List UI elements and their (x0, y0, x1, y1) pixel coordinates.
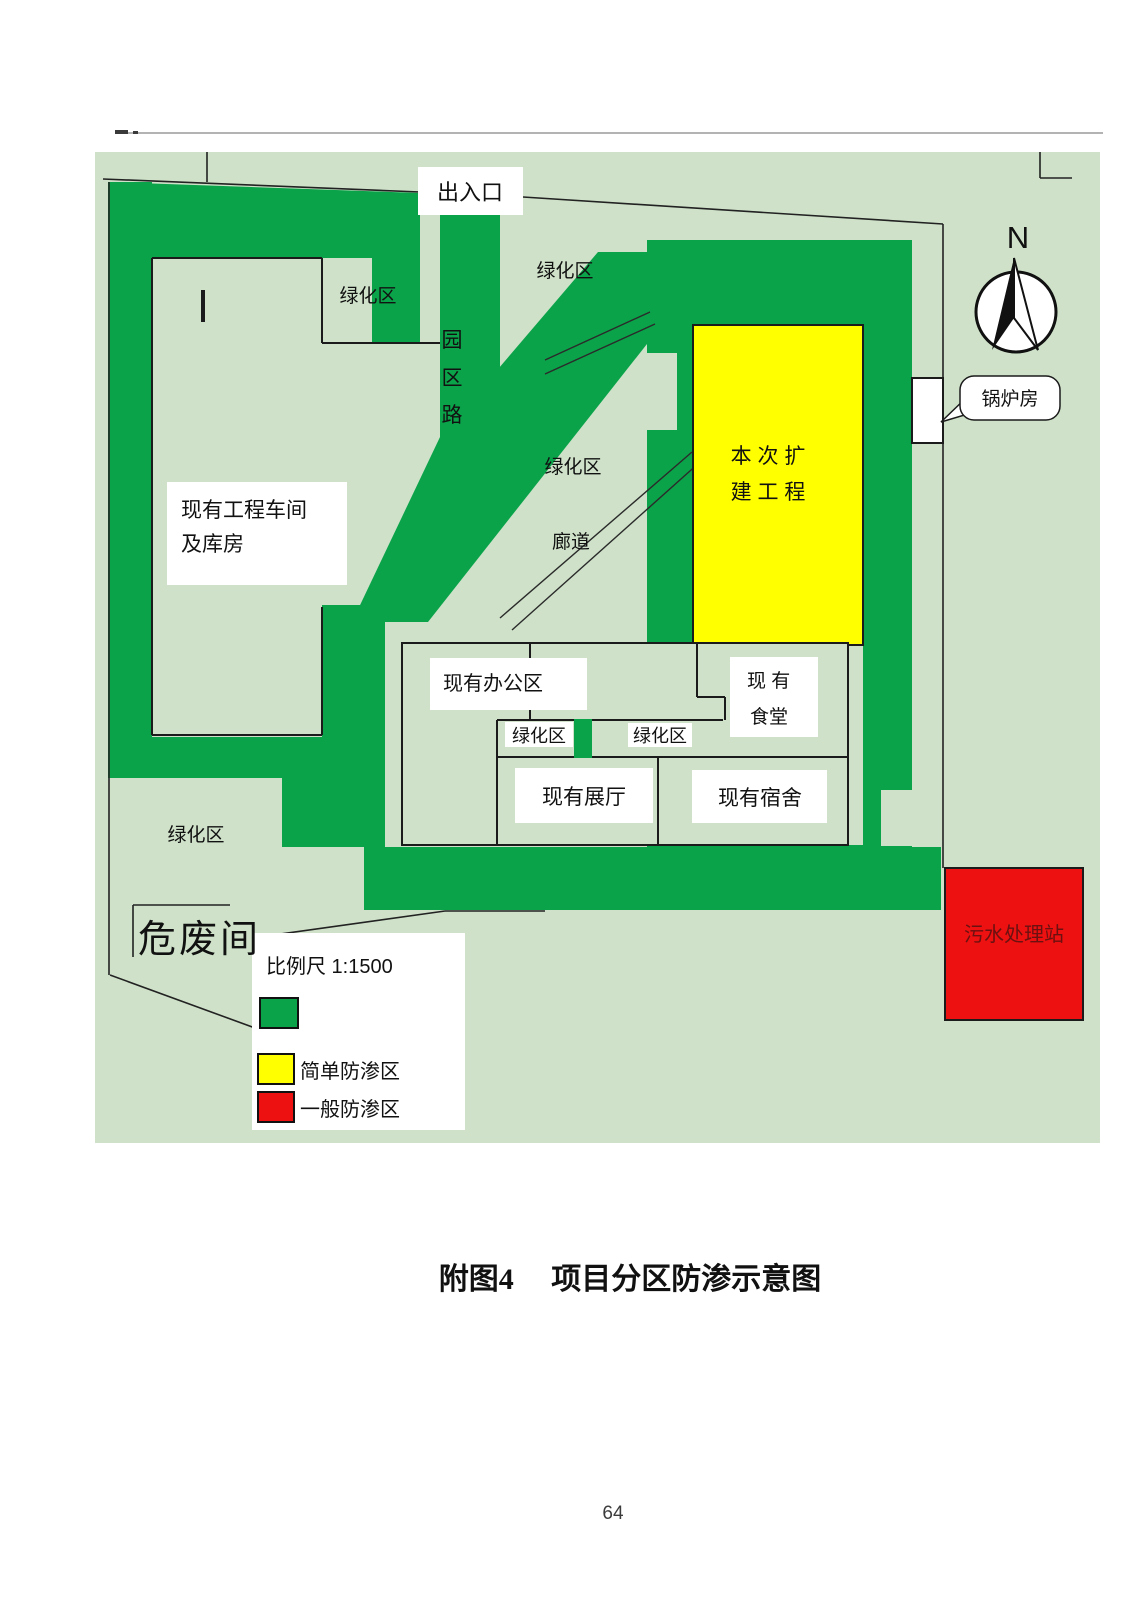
park-road-label: 区 (442, 367, 463, 390)
greenbelt-lower-step2 (282, 778, 365, 847)
scan-artifact-dot (133, 131, 138, 134)
canteen-label: 现 有 (747, 670, 790, 692)
entrance-label: 出入口 (437, 180, 503, 205)
greening-small-left-label: 绿化区 (512, 726, 566, 746)
canteen-label: 食堂 (750, 706, 788, 728)
corridor-label: 廊道 (552, 531, 590, 553)
legend-simple-zone-label: 简单防渗区 (300, 1060, 400, 1083)
workshop-label: 及库房 (181, 533, 244, 556)
greenbelt-lower-step1 (150, 737, 322, 778)
green-strip-between-greening-labels (574, 719, 592, 758)
document-page: N 比例尺 1:1500 简单防渗区 一般防渗区 出入口 绿化区 绿化区 园 区… (0, 0, 1131, 1600)
greenbelt-left-band (108, 182, 152, 778)
site-plan-figure: N 比例尺 1:1500 简单防渗区 一般防渗区 出入口 绿化区 绿化区 园 区… (0, 0, 1131, 1600)
green-notch-bottom-right (881, 790, 915, 846)
boiler-room-label: 锅炉房 (981, 388, 1038, 410)
hazardous-waste-room-label: 危废间 (138, 919, 261, 961)
greening-top-mid-label: 绿化区 (536, 260, 593, 282)
dormitory-label: 现有宿舍 (718, 787, 802, 810)
park-road-label: 路 (442, 404, 463, 427)
expansion-label: 建 工 程 (731, 481, 806, 504)
park-road-label: 园 (442, 329, 463, 352)
greening-bottom-left-label: 绿化区 (167, 824, 224, 846)
greenbelt-bottom-band (364, 847, 941, 910)
legend-scale-label: 比例尺 1:1500 (266, 955, 393, 978)
green-notch-left-of-expansion (645, 353, 677, 430)
expansion-label: 本 次 扩 (731, 445, 806, 468)
greening-mid-label: 绿化区 (544, 456, 601, 478)
greenbelt-top-band (108, 182, 420, 258)
boiler-room-building (912, 378, 943, 443)
scan-artifact-dash (115, 130, 128, 134)
legend-red-swatch (258, 1092, 294, 1122)
north-label: N (1007, 220, 1029, 255)
legend-green-swatch (260, 998, 298, 1028)
legend-yellow-swatch (258, 1054, 294, 1084)
exhibition-hall-label: 现有展厅 (542, 786, 626, 809)
light-sliver-right-of-canteen (848, 645, 863, 845)
sewage-station-label: 污水处理站 (964, 923, 1064, 946)
legend-general-zone-label: 一般防渗区 (300, 1098, 400, 1121)
figure-caption: 附图4 项目分区防渗示意图 (439, 1262, 822, 1296)
workshop-label: 现有工程车间 (181, 499, 307, 522)
page-number: 64 (602, 1503, 624, 1524)
greening-top-left-label: 绿化区 (339, 285, 396, 307)
office-label: 现有办公区 (443, 672, 543, 695)
greening-small-right-label: 绿化区 (633, 726, 687, 746)
